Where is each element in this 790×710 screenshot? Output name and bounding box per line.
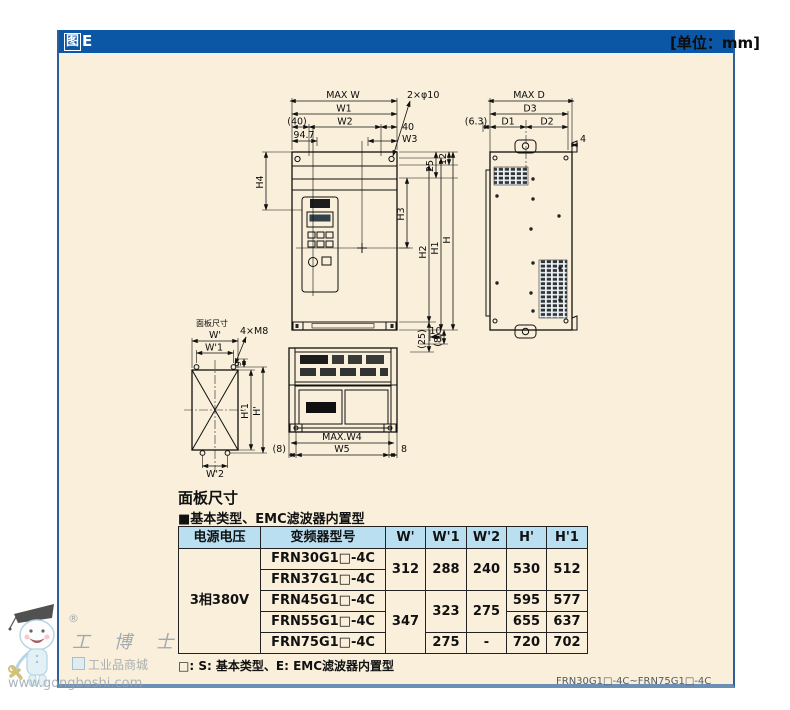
- value-cell: 720: [507, 633, 547, 654]
- registered-mark: ®: [68, 612, 79, 625]
- value-cell: 347: [386, 591, 426, 654]
- value-cell: 702: [547, 633, 588, 654]
- panel-dimensions-heading: 面板尺寸: [178, 487, 238, 508]
- value-cell: 288: [426, 549, 467, 591]
- watermark-subtitle: 工业品商城: [72, 656, 148, 673]
- col-header-model: 变频器型号: [261, 527, 386, 549]
- col-header-w2: W'2: [467, 527, 507, 549]
- table-header-row: 电源电压 变频器型号 W' W'1 W'2 H' H'1: [179, 527, 588, 549]
- watermark-logo-icon: [72, 657, 85, 670]
- table-row: 3相380V FRN30G1□-4C 312 288 240 530 512: [179, 549, 588, 570]
- figure-label-rest: E: [82, 32, 92, 50]
- col-header-h: H': [507, 527, 547, 549]
- model-cell: FRN37G1□-4C: [261, 570, 386, 591]
- value-cell: 240: [467, 549, 507, 591]
- col-header-w: W': [386, 527, 426, 549]
- watermark-subtitle-text: 工业品商城: [88, 658, 148, 672]
- value-cell: 595: [507, 591, 547, 612]
- value-cell: 530: [507, 549, 547, 591]
- model-range-label: FRN30G1□-4C~FRN75G1□-4C: [556, 676, 711, 687]
- watermark-url: www.gongboshi.com: [8, 676, 142, 691]
- watermark: ® 工 博 士 工业品商城 www.gongboshi.com: [0, 596, 300, 708]
- value-cell: 655: [507, 612, 547, 633]
- model-cell: FRN30G1□-4C: [261, 549, 386, 570]
- col-header-h1: H'1: [547, 527, 588, 549]
- value-cell: 275: [426, 633, 467, 654]
- value-cell: 312: [386, 549, 426, 591]
- value-cell: 323: [426, 591, 467, 633]
- value-cell: -: [467, 633, 507, 654]
- type-subheading: ■基本类型、EMC滤波器内置型: [178, 508, 365, 527]
- watermark-brand: 工 博 士: [72, 628, 182, 654]
- col-header-w1: W'1: [426, 527, 467, 549]
- figure-label-boxed: 图: [64, 33, 81, 51]
- col-header-voltage: 电源电压: [179, 527, 261, 549]
- value-cell: 577: [547, 591, 588, 612]
- catalog-page: { "page": { "figure_label_boxed": "图", "…: [0, 0, 790, 710]
- figure-title-bar: 图E: [59, 30, 733, 55]
- unit-label: [单位：mm]: [670, 32, 760, 53]
- value-cell: 637: [547, 612, 588, 633]
- value-cell: 275: [467, 591, 507, 633]
- value-cell: 512: [547, 549, 588, 591]
